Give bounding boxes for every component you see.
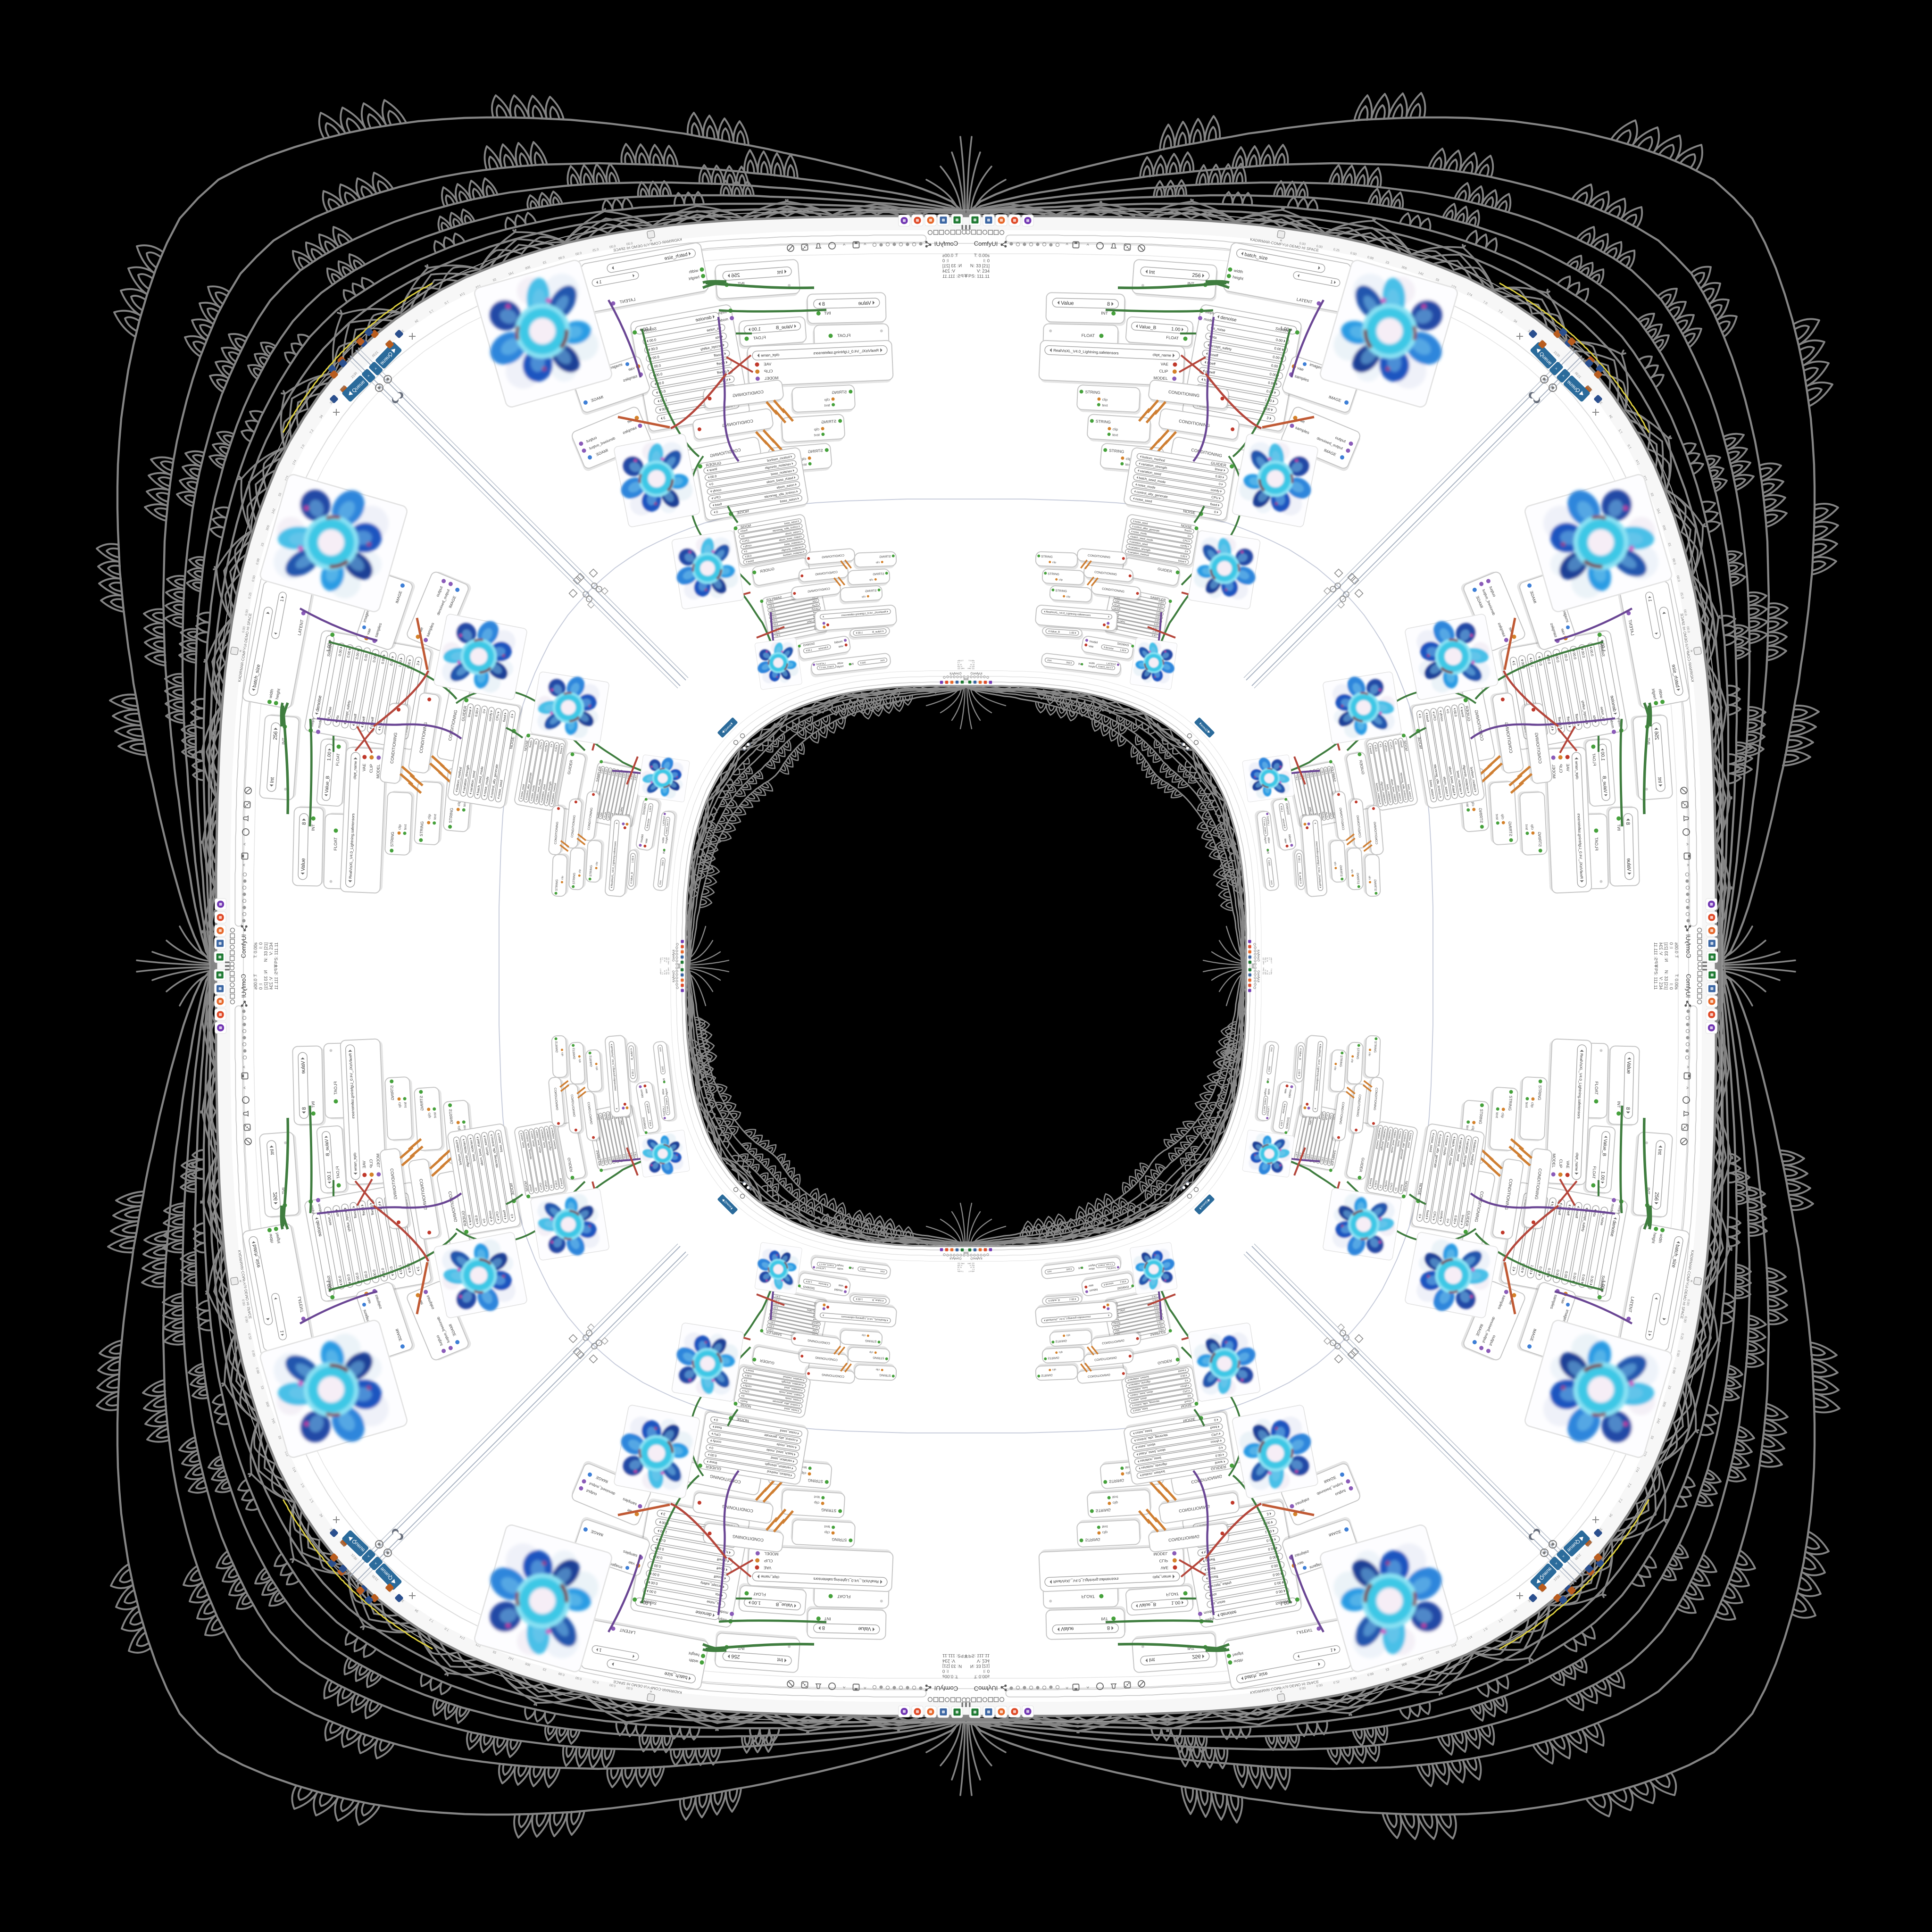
svg-text:Value: Value: [1061, 300, 1074, 307]
svg-text:STRING: STRING: [1096, 419, 1111, 425]
svg-text:FPS: 111.11: FPS: 111.11: [966, 274, 990, 279]
svg-text:1.00: 1.00: [1069, 632, 1074, 635]
svg-text:clip: clip: [1052, 561, 1056, 564]
svg-text:INT: INT: [1101, 311, 1108, 316]
svg-text:text: text: [1112, 433, 1119, 437]
svg-text:256: 256: [1192, 273, 1201, 279]
svg-text:clip: clip: [1102, 397, 1108, 402]
svg-text:FLOAT: FLOAT: [1082, 333, 1095, 338]
svg-text:STRING: STRING: [1055, 589, 1067, 593]
svg-text:STRING: STRING: [1048, 572, 1059, 576]
svg-text:STRING: STRING: [1085, 390, 1100, 395]
svg-text:VAE: VAE: [1160, 362, 1168, 367]
svg-text:Int: Int: [1149, 269, 1155, 275]
svg-text:CLIP: CLIP: [1159, 368, 1168, 374]
svg-text:8: 8: [1107, 301, 1110, 307]
svg-text:1.00: 1.00: [1171, 326, 1181, 332]
svg-text:FPS: 111: FPS: 111: [968, 668, 975, 670]
svg-text:256: 256: [1066, 661, 1070, 665]
svg-text:ComfyUI: ComfyUI: [974, 240, 998, 248]
svg-text:ckpt_name: ckpt_name: [1153, 353, 1172, 358]
svg-text:clip: clip: [1113, 427, 1118, 432]
svg-text:ComfyUI: ComfyUI: [970, 672, 983, 675]
svg-text:N: 33 [21]: N: 33 [21]: [970, 263, 990, 269]
svg-text:T: 0.00s: T: 0.00s: [974, 253, 990, 258]
svg-text:FLOAT: FLOAT: [1166, 335, 1179, 341]
svg-text:I: 0: I: 0: [983, 258, 990, 264]
svg-text:STRING: STRING: [1041, 555, 1053, 559]
svg-text:clip: clip: [1059, 579, 1063, 582]
svg-text:text: text: [1102, 403, 1108, 408]
svg-text:clip: clip: [1066, 595, 1070, 598]
svg-text:V: 234: V: 234: [977, 269, 990, 274]
